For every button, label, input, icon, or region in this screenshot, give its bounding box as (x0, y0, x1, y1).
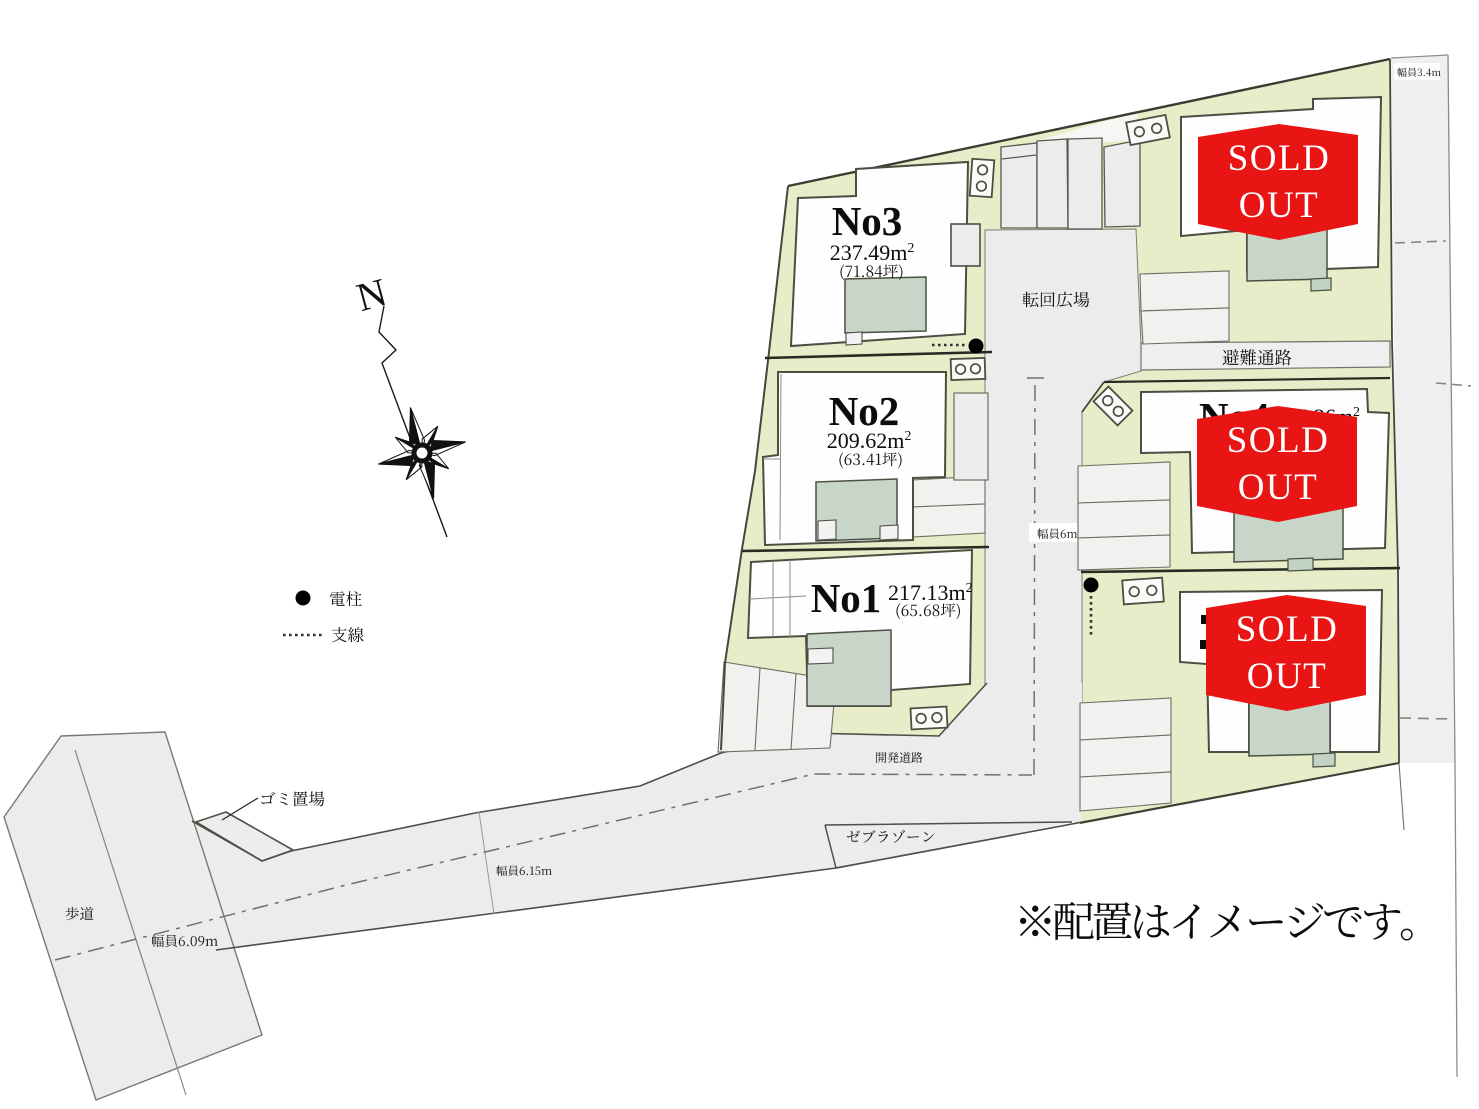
svg-text:209.62m2: 209.62m2 (827, 428, 912, 453)
svg-text:No1: No1 (811, 575, 882, 621)
svg-text:217.13m2: 217.13m2 (888, 580, 973, 605)
svg-text:237.49m2: 237.49m2 (830, 240, 915, 265)
svg-text:No3: No3 (832, 198, 903, 244)
